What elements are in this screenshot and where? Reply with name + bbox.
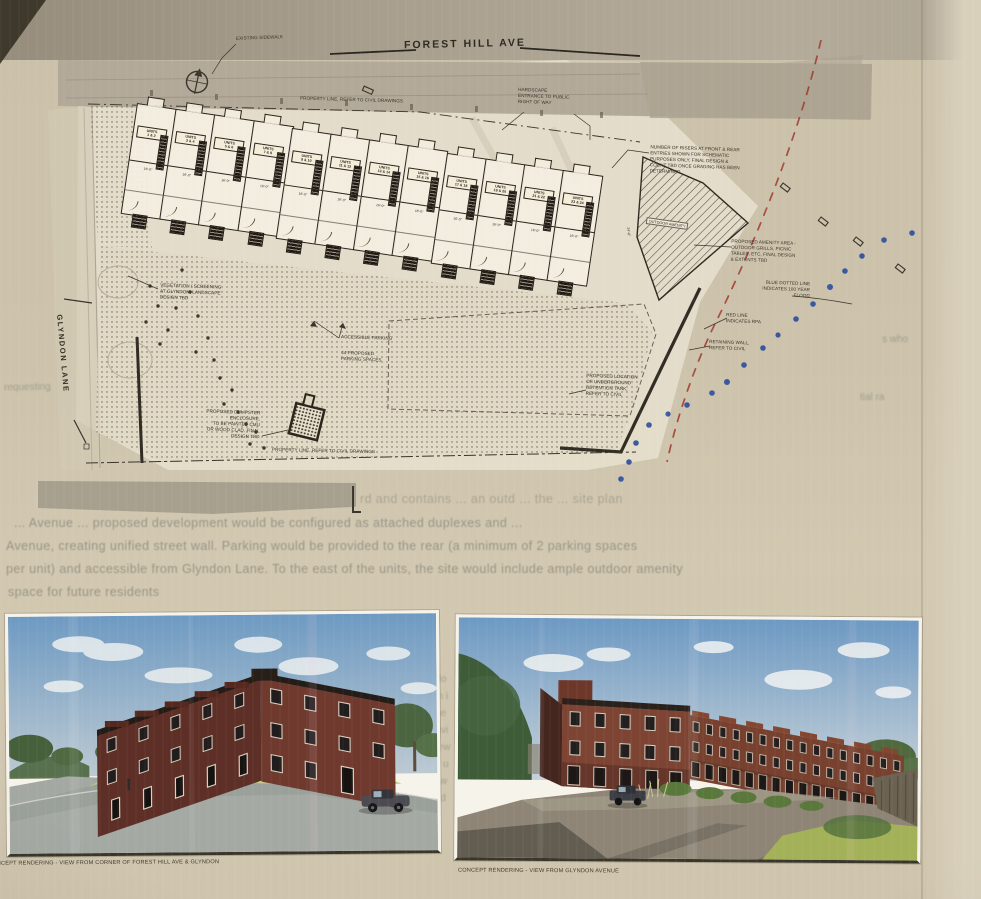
rear-stair-icon [479, 269, 496, 285]
front-stoop [263, 114, 281, 125]
street-label-dash [520, 48, 640, 56]
rear-stair-icon [440, 263, 457, 279]
door-swing-icon [164, 205, 177, 218]
door-swing-icon [551, 266, 564, 279]
annotation-rpa-line: RED LINE INDICATES RPA [726, 312, 776, 325]
front-stoop [147, 97, 165, 108]
right-rendering-caption: CONCEPT RENDERING - VIEW FROM GLYNDON AV… [458, 868, 619, 875]
right-rendering-frame [454, 614, 922, 863]
door-swing-icon [358, 236, 371, 249]
annotation-risers-note: NUMBER OF RISERS AT FRONT & REAR ENTRIES… [650, 144, 753, 177]
rear-stair-icon [247, 231, 264, 247]
door-swing-icon [203, 211, 216, 224]
floor-divider [280, 214, 319, 221]
door-swing-icon [396, 242, 409, 255]
left-rendering-frame [5, 610, 441, 857]
annotation-amenity-area: PROPOSED AMENITY AREA - OUTDOOR GRILLS, … [731, 239, 814, 265]
annotation-hardscape: HARDSCAPE ENTRANCE TO PUBLIC RIGHT OF WA… [518, 87, 583, 107]
annotation-detention-tank: PROPOSED LOCATION OF UNDERGROUND DETENTI… [586, 373, 655, 399]
floor-divider [319, 220, 358, 227]
door-swing-icon [280, 224, 293, 237]
rear-stair-icon [557, 281, 574, 297]
front-stoop [186, 102, 204, 113]
door-swing-icon [125, 200, 138, 213]
front-stoop [495, 152, 513, 163]
photographed-site-plan-document: UNITS1 & 216'-0" UNITS3 & 416'-0" UNITS5… [0, 0, 981, 899]
bleed-paragraph-line: space for future residents [8, 585, 159, 599]
rear-stair-icon [170, 219, 187, 235]
floor-divider [241, 206, 280, 213]
person [127, 779, 131, 791]
bleed-paragraph-line: Avenue, creating unified street wall. Pa… [6, 539, 637, 553]
end-building-face [562, 698, 691, 794]
left-rendering-caption: CONCEPT RENDERING - VIEW FROM CORNER OF … [0, 859, 219, 867]
front-stoop [224, 108, 242, 119]
floor-divider [203, 201, 242, 208]
corner-parapet [251, 669, 277, 681]
rear-stair-icon [208, 225, 225, 241]
floor-divider [512, 250, 551, 257]
annotation-parking-count: 44 PROPOSED PARKING SPACES [341, 350, 397, 364]
rear-stair-icon [518, 275, 535, 291]
floor-divider [396, 231, 435, 238]
right-rendering-image [457, 617, 919, 860]
front-stoop [573, 163, 591, 174]
rear-stair-icon [324, 244, 341, 260]
building-end-dimension: 24'-6" [626, 227, 631, 237]
left-rendering-image [8, 613, 438, 854]
door-swing-icon [242, 217, 255, 230]
front-stoop [302, 121, 320, 132]
bleed-fragment: requesting [4, 382, 51, 394]
bleed-paragraph-line: per unit) and accessible from Glyndon La… [6, 562, 683, 576]
rear-stair-icon [131, 214, 148, 230]
floor-divider [164, 195, 203, 202]
bleed-fragment: tial ra [860, 392, 884, 403]
bleed-paragraph-line: ... Avenue ... proposed development woul… [14, 516, 523, 530]
front-stoop [418, 139, 436, 150]
street-label-forest-hill-ave: FOREST HILL AVE [404, 37, 526, 52]
annotation-dumpster: PROPOSED DUMPSTER ENCLOSURE, TO BE PAINT… [186, 408, 261, 440]
forest-hill-ave-road-dark [640, 62, 872, 119]
bleed-fragment: s who [882, 334, 908, 345]
front-stoop [534, 158, 552, 169]
door-swing-icon [512, 261, 525, 274]
floor-divider [474, 245, 513, 252]
door-swing-icon [474, 255, 487, 268]
floor-divider [551, 256, 590, 263]
door-swing-icon [319, 230, 332, 243]
front-stoop [379, 133, 397, 144]
bleed-paragraph-line: rd and contains ... an outd ... the ... … [360, 492, 623, 506]
street-label-dash [330, 50, 416, 54]
rear-stair-icon [363, 250, 380, 266]
rear-stair-icon [286, 238, 303, 254]
floor-divider [125, 189, 164, 196]
floor-divider [358, 226, 397, 233]
rear-stair-icon [402, 256, 419, 272]
front-stoop [340, 127, 358, 138]
door-swing-icon [435, 249, 448, 262]
annotation-vegetation: VEGETATION / SCREENING AT GLYNDON, LANDS… [160, 282, 251, 303]
floor-divider [435, 239, 474, 246]
front-stoop [456, 146, 474, 157]
annotation-flood-line: BLUE DOTTED LINE INDICATES 100 YEAR FLOO… [740, 279, 811, 299]
annotation-retaining-wall: RETAINING WALL, REFER TO CIVIL [709, 339, 767, 353]
